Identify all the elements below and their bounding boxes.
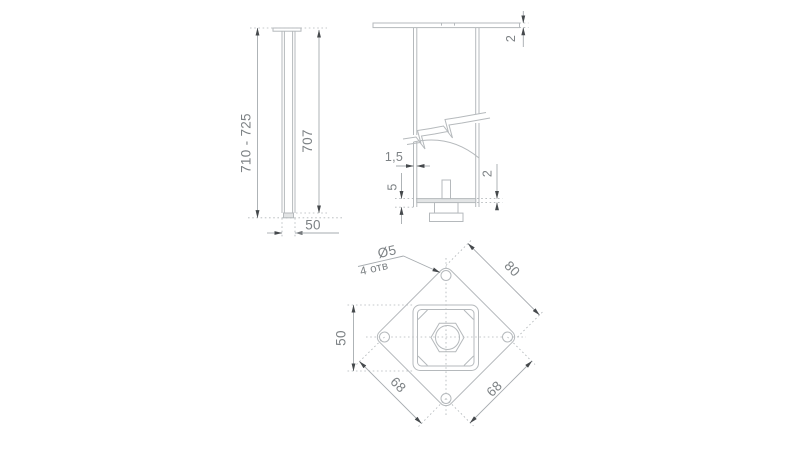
break-zigzag-lower bbox=[407, 118, 490, 149]
dim-text-stem-height: 707 bbox=[300, 129, 315, 152]
dim-text-plate-thickness: 2 bbox=[504, 35, 518, 42]
dim-wall-thickness: 1,5 bbox=[385, 150, 430, 166]
dim-text-wall-thickness: 1,5 bbox=[385, 150, 403, 164]
drawing-canvas: 710 - 725 707 50 bbox=[0, 0, 800, 450]
dim-text-glide-offset: 5 bbox=[386, 183, 400, 190]
dim-text-tube-size: 50 bbox=[334, 330, 349, 346]
tube-body bbox=[282, 31, 295, 213]
glide-collar bbox=[435, 203, 459, 214]
dim-text-height-range: 710 - 725 bbox=[239, 113, 254, 173]
break-lines bbox=[403, 113, 490, 159]
tube-cross-section bbox=[413, 305, 479, 371]
glide-stem bbox=[442, 180, 451, 199]
extension-line bbox=[508, 337, 536, 365]
section-view: 2 1,5 5 2 bbox=[373, 11, 529, 224]
top-plate-side bbox=[273, 28, 301, 31]
dim-text-base-plate-thickness: 2 bbox=[481, 170, 495, 177]
extension-line bbox=[518, 311, 545, 338]
dimension-line bbox=[468, 244, 540, 316]
corner-chamfer bbox=[418, 356, 428, 366]
extension-line bbox=[419, 399, 447, 427]
callout-text-hole-count: 4 отв bbox=[359, 260, 390, 278]
dim-text-plate-size: 80 bbox=[501, 258, 523, 280]
glide-base bbox=[430, 213, 464, 221]
dim-stem-height: 707 bbox=[300, 30, 319, 213]
corner-chamfer bbox=[464, 356, 474, 366]
technical-drawing: 710 - 725 707 50 bbox=[0, 0, 800, 450]
dim-tube-size: 50 bbox=[334, 305, 414, 371]
extension-line bbox=[446, 239, 473, 266]
dim-plate-size: 80 bbox=[446, 239, 544, 337]
stem-circle bbox=[436, 326, 460, 350]
plan-view: 80 50 68 68 Ø5 4 отв bbox=[334, 239, 545, 427]
leader-line bbox=[404, 256, 441, 273]
corner-chamfer bbox=[418, 310, 428, 320]
extension-line bbox=[357, 337, 385, 365]
side-view: 710 - 725 707 50 bbox=[239, 28, 343, 238]
foot-glide-side bbox=[284, 213, 294, 218]
extension-line bbox=[446, 399, 474, 427]
dim-hole-pitch-right: 68 bbox=[446, 337, 535, 426]
dim-glide-offset: 5 bbox=[386, 173, 417, 224]
break-zigzag-upper bbox=[403, 113, 486, 144]
dim-base-plate-thickness: 2 bbox=[477, 164, 503, 210]
hole-top bbox=[441, 271, 451, 281]
dim-tube-width: 50 bbox=[267, 218, 339, 238]
dim-hole-pitch-left: 68 bbox=[357, 337, 447, 427]
hole-callout: Ø5 4 отв bbox=[358, 242, 440, 278]
top-plate-section bbox=[373, 23, 520, 28]
bottom-plate-section bbox=[417, 199, 476, 203]
dim-overall-height: 710 - 725 bbox=[239, 28, 258, 218]
dim-text-hole-pitch-right: 68 bbox=[483, 378, 505, 400]
dim-text-tube-width: 50 bbox=[305, 218, 321, 233]
dim-top-plate-thickness: 2 bbox=[504, 11, 529, 47]
corner-chamfer bbox=[464, 310, 474, 320]
